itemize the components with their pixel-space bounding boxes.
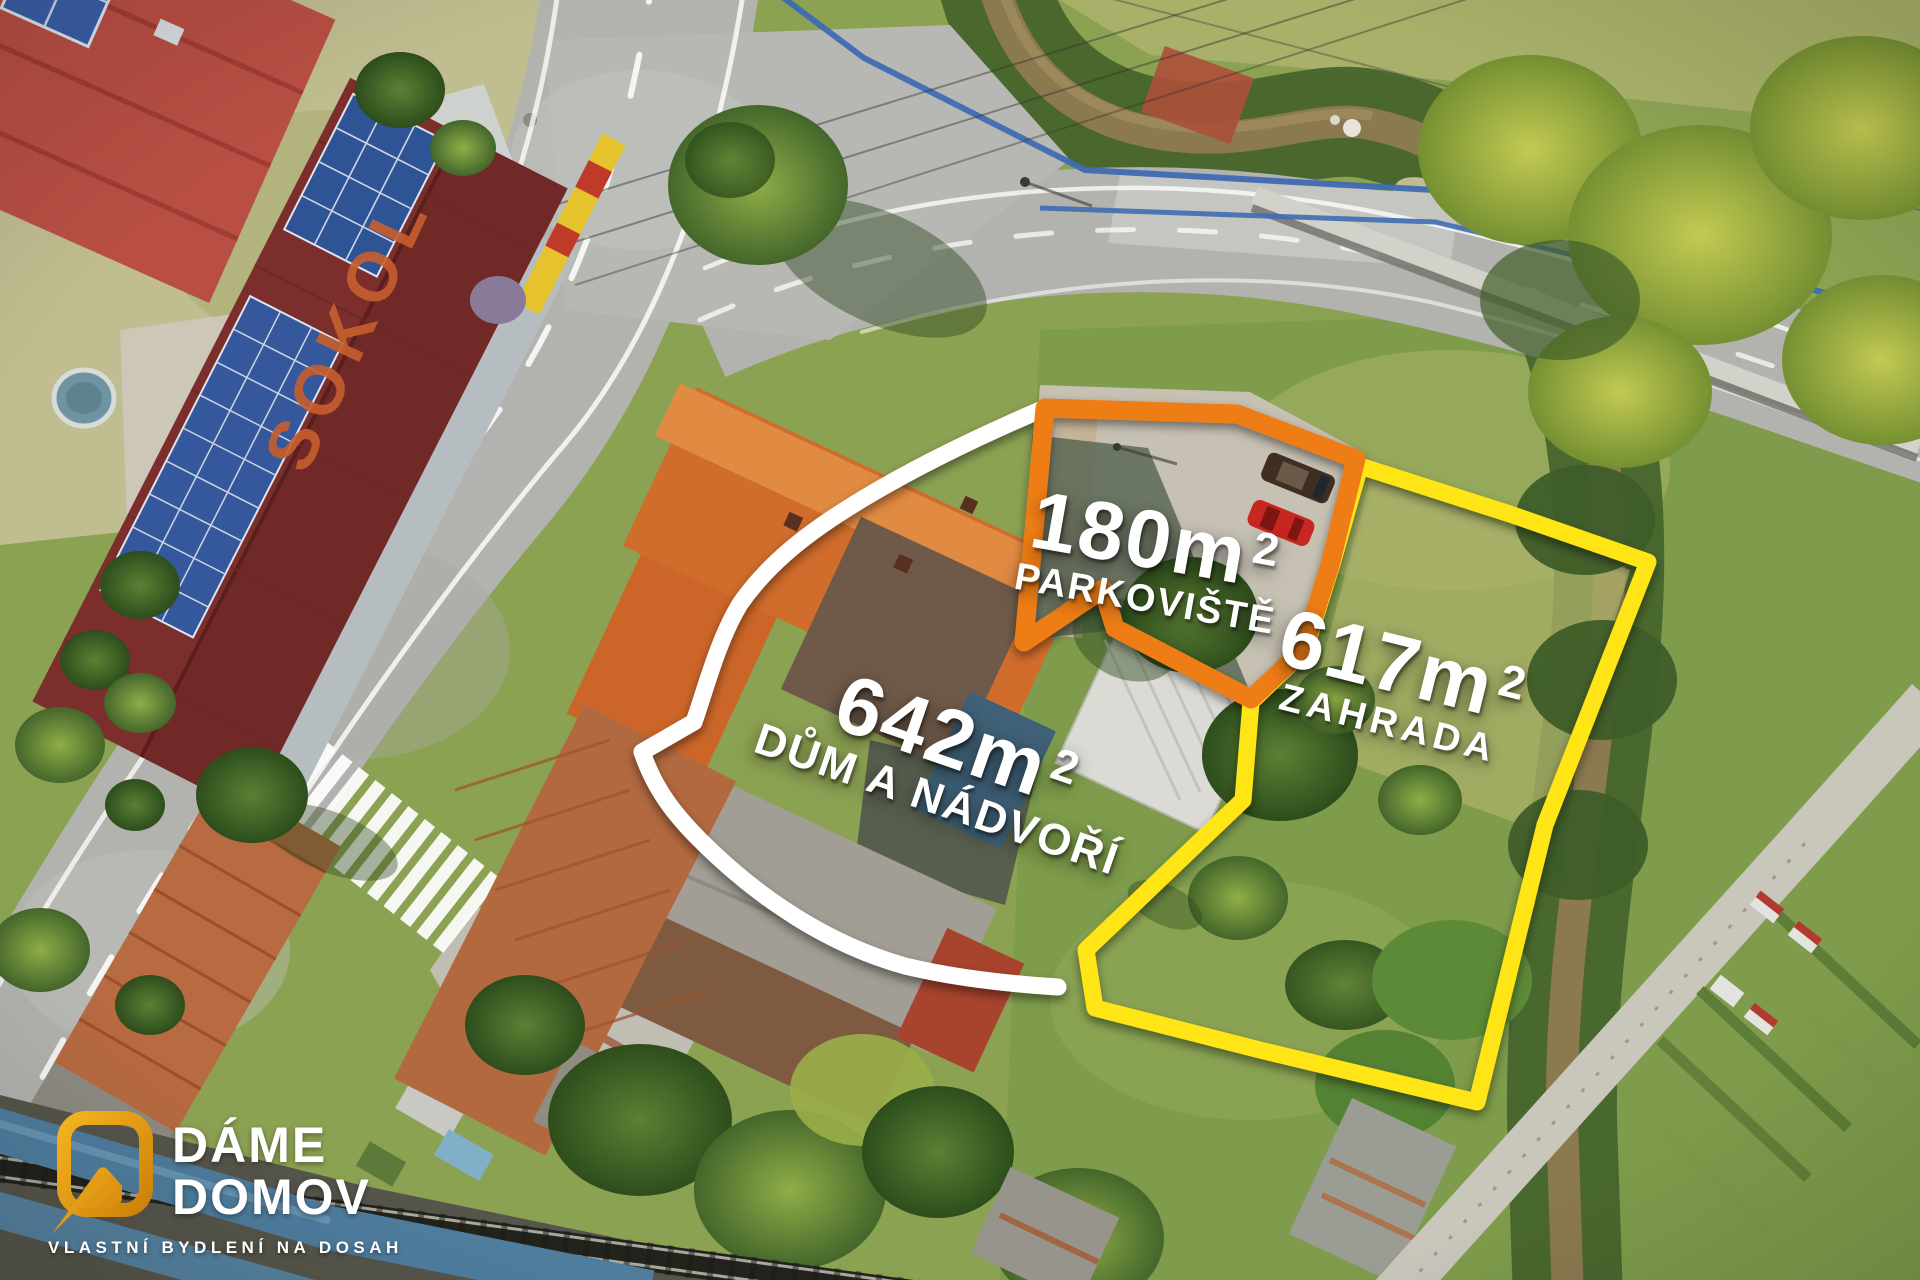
brand-name-line2: DOMOV [172, 1168, 371, 1226]
brand-logo: DÁME DOMOV VLASTNÍ BYDLENÍ NA DOSAH [30, 1100, 490, 1280]
vignette [0, 0, 1920, 1280]
brand-name-line1: DÁME [172, 1116, 327, 1174]
logo-house-icon [52, 1108, 162, 1238]
aerial-listing-image: SOKOL [0, 0, 1920, 1280]
aerial-photo-scene: SOKOL [0, 0, 1920, 1280]
brand-tagline: VLASTNÍ BYDLENÍ NA DOSAH [48, 1238, 403, 1258]
